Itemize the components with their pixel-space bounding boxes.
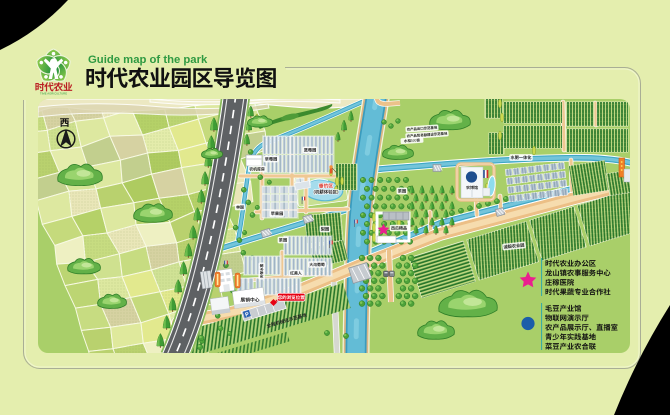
svg-text:菜豆产业农合联: 菜豆产业农合联 <box>545 342 597 352</box>
svg-text:茶园: 茶园 <box>279 238 287 244</box>
svg-text:龙山镇农事服务中心: 龙山镇农事服务中心 <box>545 269 611 279</box>
svg-text:展销中心: 展销中心 <box>240 297 259 304</box>
svg-text:林园: 林园 <box>236 204 244 210</box>
svg-text:大沟葡萄: 大沟葡萄 <box>309 262 325 268</box>
svg-text:梨园: 梨园 <box>321 227 329 233</box>
svg-text:草莓园: 草莓园 <box>265 157 278 163</box>
svg-text:时代农业园区导览图: 时代农业园区导览图 <box>85 61 277 93</box>
svg-text:时代果蔬专业合作社: 时代果蔬专业合作社 <box>545 288 611 298</box>
svg-text:TIME AGRICULTURE: TIME AGRICULTURE <box>40 92 67 96</box>
svg-text:青少年实践基地: 青少年实践基地 <box>545 333 597 343</box>
svg-text:水肥一体化: 水肥一体化 <box>511 155 533 161</box>
svg-text:天保水蜜: 天保水蜜 <box>259 263 265 278</box>
svg-text:西瓜精品: 西瓜精品 <box>391 225 407 231</box>
svg-text:垂钓区: 垂钓区 <box>319 183 334 190</box>
svg-text:毛豆产业馆: 毛豆产业馆 <box>545 304 581 314</box>
svg-text:庄稼医院: 庄稼医院 <box>545 278 575 288</box>
svg-text:茶园: 茶园 <box>398 189 406 195</box>
svg-text:物联网演示厅: 物联网演示厅 <box>545 314 589 324</box>
svg-text:时代农业办公区: 时代农业办公区 <box>545 259 596 269</box>
svg-text:西: 西 <box>60 115 70 129</box>
svg-text:农博馆: 农博馆 <box>466 185 478 191</box>
svg-text:苹果园: 苹果园 <box>271 211 284 217</box>
svg-text:农机库房: 农机库房 <box>249 166 265 172</box>
svg-text:您的浏览位置: 您的浏览位置 <box>278 295 305 301</box>
svg-text:农产品展示厅、直播室: 农产品展示厅、直播室 <box>545 323 618 333</box>
svg-text:红美人: 红美人 <box>290 270 302 276</box>
svg-text:(机耕体验区): (机耕体验区) <box>313 189 339 196</box>
svg-text:蓝莓园: 蓝莓园 <box>304 148 317 154</box>
